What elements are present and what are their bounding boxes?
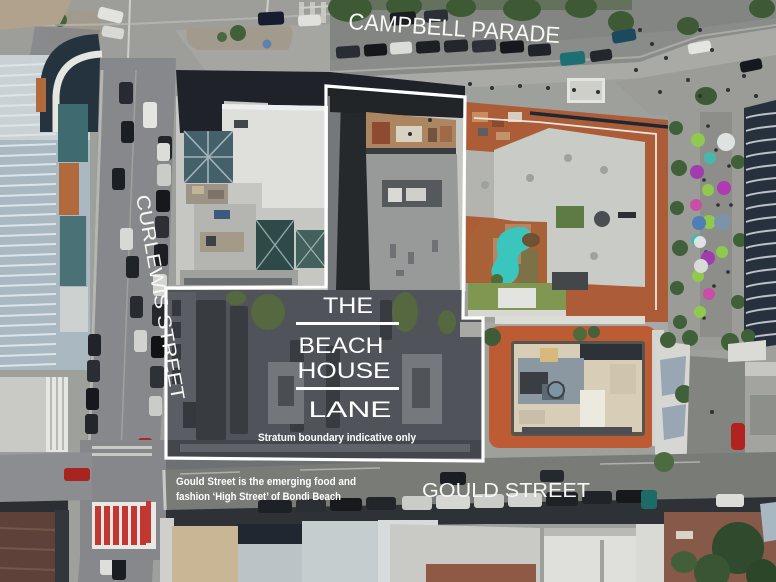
svg-text:fashion ‘High Street’ of Bondi: fashion ‘High Street’ of Bondi Beach bbox=[176, 491, 341, 503]
svg-text:THE: THE bbox=[323, 293, 373, 318]
svg-text:GOULD STREET: GOULD STREET bbox=[422, 480, 590, 502]
svg-text:LANE: LANE bbox=[309, 397, 392, 422]
svg-text:Gould Street is the emerging f: Gould Street is the emerging food and bbox=[176, 476, 356, 488]
svg-text:Stratum boundary indicative on: Stratum boundary indicative only bbox=[258, 432, 417, 444]
svg-text:BEACH: BEACH bbox=[299, 333, 384, 358]
svg-text:HOUSE: HOUSE bbox=[298, 358, 391, 383]
